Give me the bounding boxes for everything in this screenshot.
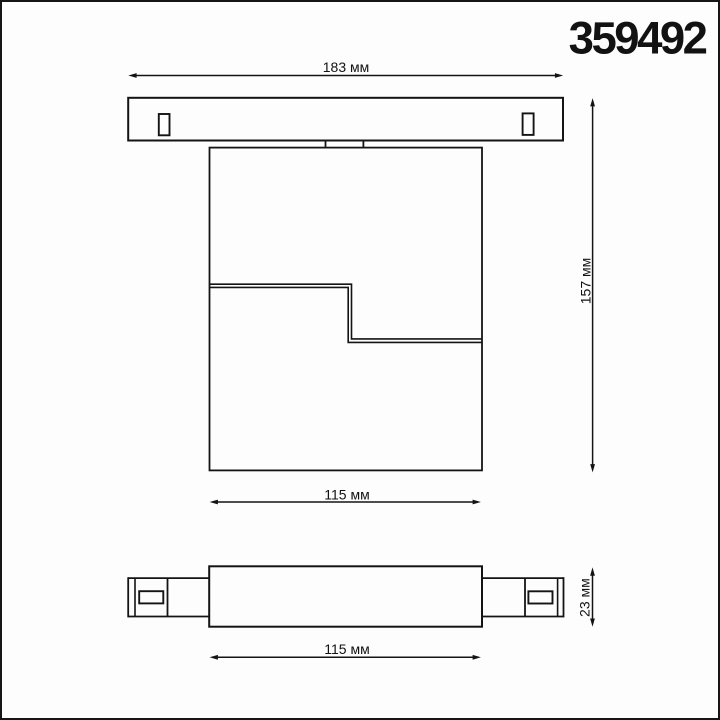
svg-text:359492: 359492 [569,13,707,64]
svg-text:183 мм: 183 мм [323,59,370,75]
svg-text:115 мм: 115 мм [324,487,369,503]
svg-text:115 мм: 115 мм [324,641,369,657]
svg-text:23 мм: 23 мм [577,578,593,617]
svg-text:157 мм: 157 мм [577,258,593,305]
